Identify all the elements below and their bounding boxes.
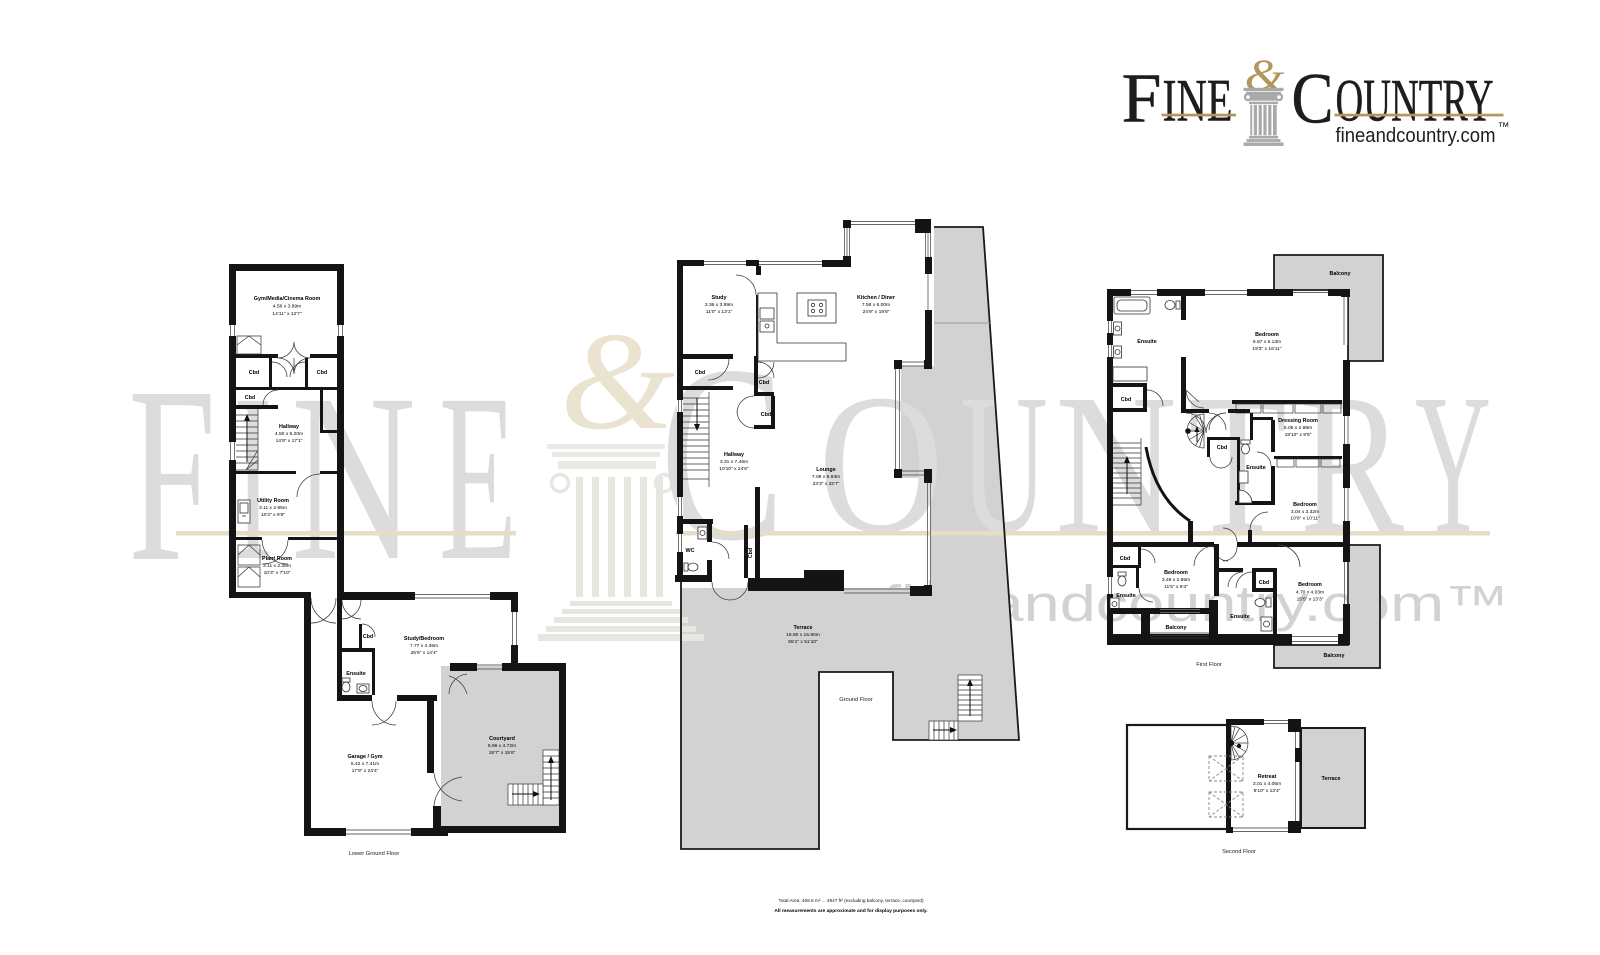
svg-text:10'3" x 9'8": 10'3" x 9'8" (261, 512, 285, 518)
svg-text:First Floor: First Floor (1196, 662, 1222, 668)
svg-text:4.50 x 5.20m: 4.50 x 5.20m (275, 431, 303, 437)
svg-text:10'10" x 24'6": 10'10" x 24'6" (719, 466, 749, 472)
svg-text:25'6" x 14'4": 25'6" x 14'4" (411, 650, 438, 656)
svg-text:Hallway: Hallway (279, 424, 299, 430)
svg-text:Garage / Gym: Garage / Gym (347, 754, 382, 760)
svg-text:7.56 x 6.00m: 7.56 x 6.00m (862, 302, 890, 308)
svg-text:Utility Room: Utility Room (257, 498, 289, 504)
svg-text:9'10" x 13'4": 9'10" x 13'4" (1254, 788, 1281, 794)
svg-text:10'3" x 7'10": 10'3" x 7'10" (264, 570, 291, 576)
svg-text:7.08 x 9.93m: 7.08 x 9.93m (812, 474, 840, 480)
svg-text:Ground Floor: Ground Floor (839, 697, 873, 703)
svg-text:Cbd: Cbd (748, 548, 754, 558)
svg-text:Ensuite: Ensuite (1230, 614, 1249, 620)
svg-text:4.56 x 3.89m: 4.56 x 3.89m (273, 304, 301, 310)
svg-text:Cbd: Cbd (249, 370, 259, 376)
svg-text:19'10" x 9'5": 19'10" x 9'5" (1285, 432, 1312, 438)
svg-text:19'7" x 15'6": 19'7" x 15'6" (489, 750, 516, 756)
svg-text:16.80 x 15.80m: 16.80 x 15.80m (786, 632, 820, 638)
svg-text:Cbd: Cbd (695, 370, 705, 376)
svg-text:Ensuite: Ensuite (1137, 339, 1156, 345)
svg-text:Bedroom: Bedroom (1293, 502, 1317, 508)
svg-text:Lounge: Lounge (816, 467, 835, 473)
svg-text:Bedroom: Bedroom (1164, 570, 1188, 576)
svg-text:Y: Y (1415, 354, 1491, 575)
svg-text:5.87 x 5.13m: 5.87 x 5.13m (1253, 339, 1281, 345)
svg-text:Cbd: Cbd (1259, 580, 1269, 586)
svg-text:Cbd: Cbd (1120, 556, 1130, 562)
svg-text:Ensuite: Ensuite (1116, 593, 1135, 599)
svg-text:15'5" x 13'3": 15'5" x 13'3" (1297, 597, 1324, 603)
svg-text:5.42 x 7.41m: 5.42 x 7.41m (351, 761, 379, 767)
svg-text:55'1" x 51'10": 55'1" x 51'10" (788, 639, 818, 645)
svg-text:3.49 x 2.85m: 3.49 x 2.85m (1162, 577, 1190, 583)
svg-text:6.05 x 2.88m: 6.05 x 2.88m (1284, 425, 1312, 431)
svg-text:F: F (128, 334, 216, 614)
svg-text:Terrace: Terrace (1321, 776, 1340, 782)
svg-text:Balcony: Balcony (1324, 653, 1345, 659)
svg-text:4.70 x 4.03m: 4.70 x 4.03m (1296, 590, 1324, 596)
svg-text:11'5" x 9'4": 11'5" x 9'4" (1164, 584, 1188, 590)
svg-text:Balcony: Balcony (1330, 271, 1351, 277)
svg-text:Cbd: Cbd (1217, 445, 1227, 451)
svg-text:Bedroom: Bedroom (1298, 582, 1322, 588)
svg-text:O: O (818, 354, 944, 575)
svg-text:Total Area: 459.6 m² ... 4947: Total Area: 459.6 m² ... 4947 ft² (exclu… (778, 898, 923, 903)
svg-text:5.96 x 4.72m: 5.96 x 4.72m (488, 743, 516, 749)
svg-text:R: R (1300, 354, 1404, 575)
svg-text:17'9" x 24'4": 17'9" x 24'4" (352, 768, 379, 774)
svg-text:3.01 x 4.06m: 3.01 x 4.06m (1253, 781, 1281, 787)
svg-text:Cbd: Cbd (1121, 397, 1131, 403)
svg-text:Dressing Room: Dressing Room (1278, 418, 1318, 424)
svg-text:Cbd: Cbd (761, 412, 771, 418)
svg-text:19'3" x 16'11": 19'3" x 16'11" (1252, 346, 1281, 352)
svg-text:&: & (560, 304, 675, 459)
svg-text:14'11" x 12'7": 14'11" x 12'7" (272, 311, 301, 317)
svg-text:U: U (960, 354, 1048, 575)
svg-text:E: E (439, 344, 517, 610)
svg-text:fineandcountry.com™: fineandcountry.com™ (883, 575, 1509, 632)
svg-text:All measurements are approxima: All measurements are approximate and for… (774, 908, 928, 914)
svg-text:Cbd: Cbd (317, 370, 327, 376)
svg-text:3.04 x 3.32m: 3.04 x 3.32m (1291, 509, 1319, 515)
svg-text:Hallway: Hallway (724, 452, 744, 458)
svg-text:Ensuite: Ensuite (346, 671, 365, 677)
svg-text:Second Floor: Second Floor (1222, 849, 1256, 855)
svg-text:Lower Ground Floor: Lower Ground Floor (349, 851, 400, 857)
svg-text:Balcony: Balcony (1166, 625, 1187, 631)
svg-text:Terrace: Terrace (793, 625, 812, 631)
svg-text:Study/Bedroom: Study/Bedroom (404, 636, 444, 642)
svg-text:N: N (1055, 354, 1177, 575)
svg-text:WC: WC (686, 548, 695, 554)
svg-text:N: N (291, 344, 416, 610)
svg-text:Bedroom: Bedroom (1255, 332, 1279, 338)
svg-text:Cbd: Cbd (245, 395, 255, 401)
svg-text:7.77 x 4.36m: 7.77 x 4.36m (410, 643, 438, 649)
svg-text:24'9" x 19'8": 24'9" x 19'8" (863, 309, 890, 315)
svg-text:23'3" x 32'7": 23'3" x 32'7" (813, 481, 840, 487)
svg-text:Cbd: Cbd (363, 634, 373, 640)
svg-text:Plant Room: Plant Room (262, 556, 292, 562)
svg-text:Kitchen / Diner: Kitchen / Diner (857, 295, 896, 301)
svg-text:3.36 x 3.99m: 3.36 x 3.99m (705, 302, 733, 308)
svg-text:Ensuite: Ensuite (1246, 465, 1265, 471)
svg-text:3.11 x 2.38m: 3.11 x 2.38m (263, 563, 291, 569)
svg-text:10'0" x 10'11": 10'0" x 10'11" (1290, 516, 1319, 522)
svg-text:Retreat: Retreat (1258, 774, 1277, 780)
svg-text:Courtyard: Courtyard (489, 736, 515, 742)
svg-text:Gym/Media/Cinema Room: Gym/Media/Cinema Room (254, 296, 321, 302)
svg-text:14'9" x 17'1": 14'9" x 17'1" (276, 438, 303, 444)
svg-text:3.31 x 7.46m: 3.31 x 7.46m (720, 459, 748, 465)
svg-text:11'0" x 13'1": 11'0" x 13'1" (706, 309, 733, 315)
svg-text:Cbd: Cbd (759, 380, 769, 386)
svg-text:Study: Study (712, 295, 727, 301)
svg-text:3.11 x 2.95m: 3.11 x 2.95m (259, 505, 287, 511)
